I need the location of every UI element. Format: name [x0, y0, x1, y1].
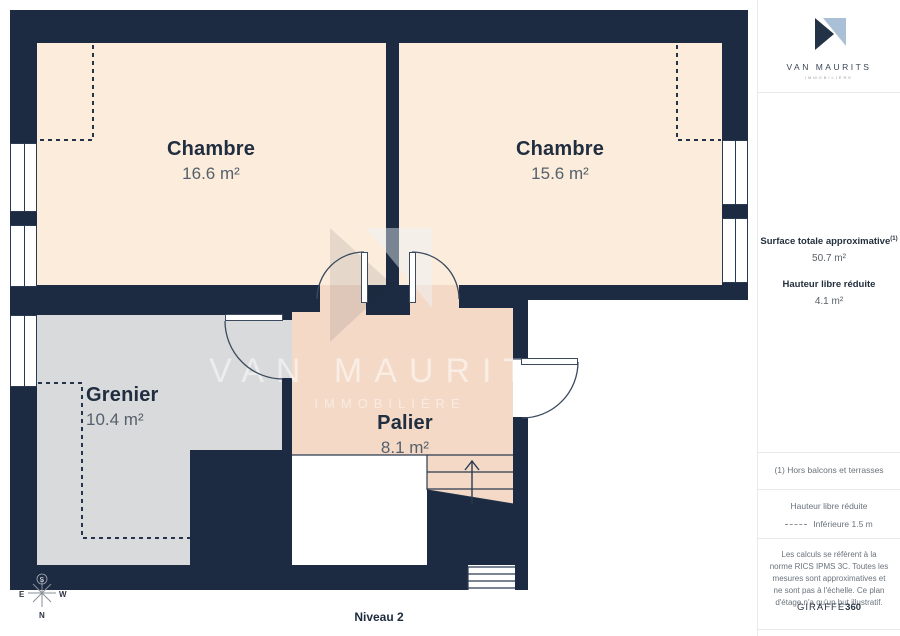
window-mullion — [24, 144, 25, 211]
door-leaf — [225, 314, 283, 321]
window-symbol — [10, 225, 37, 287]
divider — [758, 538, 900, 539]
footnote-text: (1) Hors balcons et terrasses — [758, 465, 900, 475]
room-name: Chambre — [106, 138, 316, 161]
room-grenier-lower — [37, 450, 190, 565]
room-label: Grenier 10.4 m² — [86, 384, 159, 430]
logo-subtitle: IMMOBILIÈRE — [758, 75, 900, 80]
window-mullion — [24, 316, 25, 386]
disclaimer-text: Les calculs se réfèrent à la norme RICS … — [758, 549, 900, 609]
room-name: Grenier — [86, 384, 159, 407]
legend-title: Hauteur libre réduite — [758, 501, 900, 511]
footnote-marker: (1) — [890, 236, 897, 242]
room-area: 15.6 m² — [455, 164, 665, 184]
legend-dash-swatch — [785, 524, 807, 525]
door-leaf — [521, 358, 578, 365]
window-symbol — [722, 140, 748, 205]
floor-plan-canvas: VAN MAURITS IMMOBILIÈRE — [0, 0, 900, 636]
watermark-subtitle: IMMOBILIÈRE — [180, 396, 600, 411]
door-leaf — [409, 252, 416, 303]
room-label: Chambre 15.6 m² — [455, 138, 665, 184]
brand-suffix: 360 — [845, 602, 861, 613]
divider — [758, 452, 900, 453]
divider — [758, 489, 900, 490]
divider — [758, 92, 900, 93]
legend-item-label: Inférieure 1.5 m — [813, 519, 873, 529]
wall-segment — [513, 300, 528, 360]
legend-block: Hauteur libre réduite Inférieure 1.5 m — [758, 501, 900, 529]
window-mullion — [24, 226, 25, 286]
divider — [758, 629, 900, 630]
wall-segment — [513, 417, 528, 565]
room-label: Chambre 16.6 m² — [106, 138, 316, 184]
wall-segment — [515, 565, 528, 590]
wall-segment — [528, 285, 748, 300]
wall-segment — [366, 285, 410, 315]
stair-continuation — [468, 567, 515, 590]
agency-logo: VAN MAURITS IMMOBILIÈRE — [758, 16, 900, 80]
brand-name: GIRAFFE — [797, 602, 845, 613]
logo-mark-icon — [806, 16, 852, 52]
window-symbol — [10, 143, 37, 212]
wall-segment — [10, 565, 468, 590]
room-label: Palier 8.1 m² — [315, 412, 495, 458]
stair-void — [292, 455, 427, 565]
wall-segment — [282, 312, 292, 320]
wall-segment — [386, 43, 399, 290]
floor-label: Niveau 2 — [10, 610, 748, 624]
compass-letter-east: E — [19, 590, 25, 599]
window-mullion — [735, 219, 736, 282]
room-area: 8.1 m² — [315, 438, 495, 458]
wall-segment — [190, 450, 292, 565]
window-symbol — [722, 218, 748, 283]
logo-title: VAN MAURITS — [758, 62, 900, 72]
door-leaf — [361, 252, 368, 303]
wall-segment — [292, 285, 320, 312]
room-name: Palier — [315, 412, 495, 435]
height-reduced-value: 4.1 m² — [758, 296, 900, 307]
room-name: Chambre — [455, 138, 665, 161]
surface-total-value: 50.7 m² — [758, 253, 900, 264]
compass-letter-west: W — [59, 590, 67, 599]
height-reduced-label: Hauteur libre réduite — [758, 279, 900, 290]
summary-block: Surface totale approximative(1) 50.7 m² … — [758, 236, 900, 307]
room-area: 16.6 m² — [106, 164, 316, 184]
wall-segment — [10, 10, 748, 43]
room-area: 10.4 m² — [86, 410, 159, 430]
brand-giraffe360: GIRAFFE360 — [758, 602, 900, 613]
window-symbol — [10, 315, 37, 387]
surface-total-label: Surface totale approximative(1) — [758, 236, 900, 247]
window-mullion — [735, 141, 736, 204]
wall-segment — [10, 285, 292, 315]
sidebar-panel: VAN MAURITS IMMOBILIÈRE Surface totale a… — [757, 0, 900, 636]
